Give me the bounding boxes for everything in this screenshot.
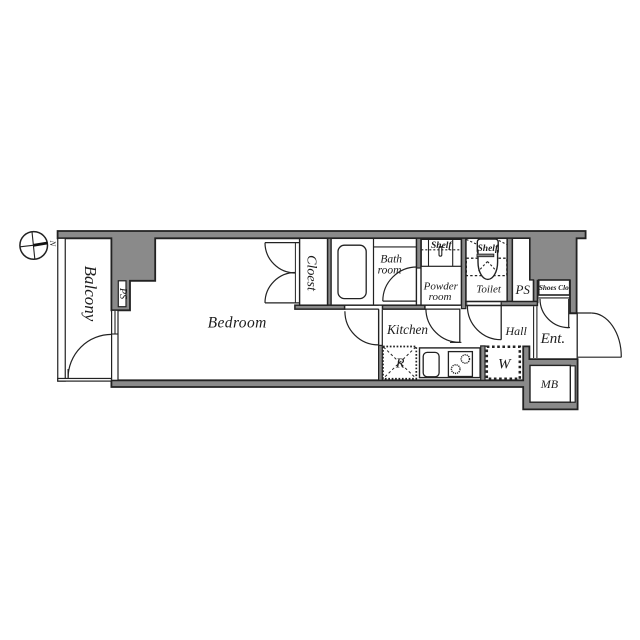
svg-text:room: room: [378, 264, 402, 276]
svg-text:PS: PS: [117, 287, 128, 299]
svg-text:Ent.: Ent.: [540, 331, 566, 347]
svg-text:Shelf: Shelf: [478, 244, 499, 254]
svg-text:Shelf: Shelf: [431, 241, 452, 251]
svg-text:room: room: [429, 291, 452, 303]
svg-text:Bedroom: Bedroom: [208, 315, 267, 332]
svg-text:Shoes Clo: Shoes Clo: [539, 284, 569, 292]
svg-text:Hall: Hall: [505, 324, 528, 338]
svg-text:Toilet: Toilet: [476, 283, 502, 295]
svg-text:R: R: [395, 357, 405, 372]
svg-text:W: W: [498, 356, 512, 372]
svg-text:Cloest: Cloest: [304, 255, 319, 292]
svg-text:Kitchen: Kitchen: [386, 322, 428, 337]
svg-text:Balcony: Balcony: [81, 266, 100, 322]
svg-text:MB: MB: [540, 377, 559, 391]
svg-text:PS: PS: [514, 282, 530, 297]
